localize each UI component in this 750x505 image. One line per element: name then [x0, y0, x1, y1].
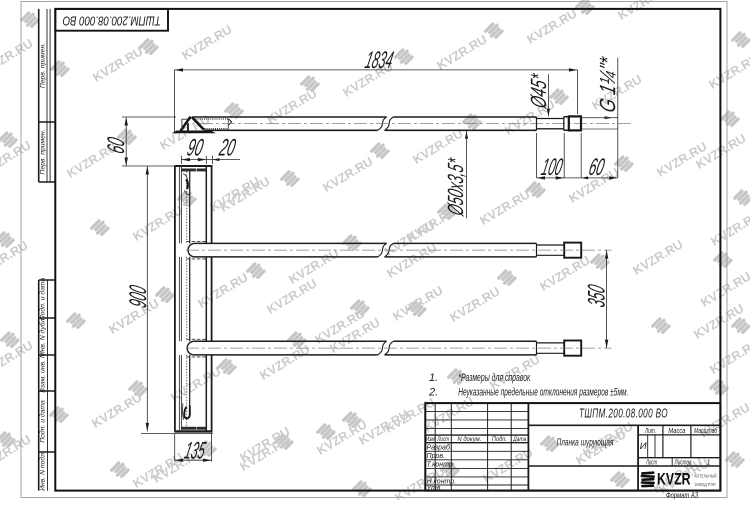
svg-text:G 1¼"*: G 1¼"* [595, 54, 620, 115]
svg-text:Подп.: Подп. [492, 435, 507, 443]
svg-text:Лист: Лист [645, 459, 657, 466]
svg-text:Масса: Масса [668, 428, 685, 435]
svg-text:Лит.: Лит. [644, 428, 656, 435]
svg-text:Инв. N дубл.: Инв. N дубл. [39, 317, 47, 356]
svg-text:KVZR: KVZR [657, 471, 691, 489]
svg-text:Формат А3: Формат А3 [666, 491, 698, 500]
svg-text:Подп. и дата: Подп. и дата [39, 400, 47, 443]
svg-text:Разраб.: Разраб. [427, 444, 452, 452]
svg-text:N докум.: N докум. [457, 435, 481, 443]
svg-text:Инв. N подл.: Инв. N подл. [39, 451, 47, 491]
svg-text:Масштаб: Масштаб [694, 427, 718, 435]
svg-text:Утв.: Утв. [426, 485, 443, 492]
svg-text:Перв. примен.: Перв. примен. [40, 129, 47, 174]
svg-text:КОТЕЛЬНЫЙ: КОТЕЛЬНЫЙ [695, 472, 717, 479]
svg-text:ЗАВОД РЭП: ЗАВОД РЭП [695, 482, 716, 487]
svg-text:Планка шурующая: Планка шурующая [557, 436, 614, 448]
svg-text:Т.контр.: Т.контр. [427, 462, 455, 469]
svg-text:Листов: Листов [674, 459, 692, 466]
svg-text:Неуказанные предельные отклоне: Неуказанные предельные отклонения размер… [458, 387, 628, 399]
svg-text:Ø50х3,5*: Ø50х3,5* [443, 155, 468, 218]
svg-text:1: 1 [707, 459, 711, 466]
svg-text:*Размеры для справок: *Размеры для справок [458, 372, 530, 384]
svg-text:Взам. инв. N: Взам. инв. N [40, 353, 47, 393]
svg-text:ТШПМ.200.08.000 ВО: ТШПМ.200.08.000 ВО [62, 14, 160, 28]
svg-text:Ø45*: Ø45* [526, 71, 551, 111]
svg-text:Лист: Лист [437, 436, 450, 443]
svg-text:1.: 1. [429, 372, 438, 384]
svg-text:Изм: Изм [426, 436, 435, 443]
svg-text:Перв. примен.: Перв. примен. [40, 43, 47, 88]
svg-text:Пров.: Пров. [427, 453, 446, 460]
svg-text:И: И [640, 441, 647, 452]
svg-text:Подп. и дата: Подп. и дата [39, 278, 47, 321]
svg-text:Дата: Дата [513, 436, 527, 443]
svg-text:2.: 2. [428, 387, 438, 399]
svg-text:ТШПМ.200.08.000 ВО: ТШПМ.200.08.000 ВО [579, 405, 668, 420]
